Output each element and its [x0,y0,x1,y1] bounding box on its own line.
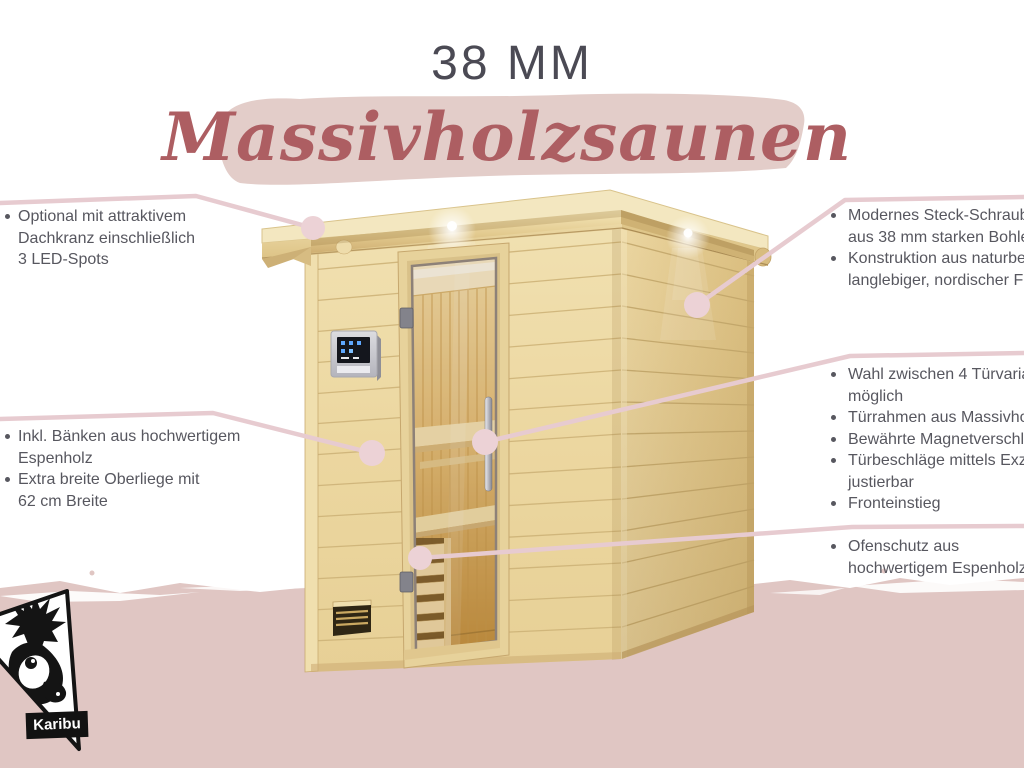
callout-line-text: Fronteinstieg [848,493,1024,515]
door-hinge-bottom [400,572,413,592]
callout-dot-door [472,429,498,455]
headline-size: 38 MM [0,36,1024,91]
callout-line-text: Inkl. Bänken aus hochwertigem [18,426,240,448]
callout-line-text: Extra breite Oberliege mit [18,469,240,491]
bullet-icon [5,214,10,219]
bullet-icon [831,544,836,549]
callout-dot-roof [301,216,325,240]
sauna-control-panel [331,331,381,381]
infographic-canvas: 38 MM Massivholzsaunen Optional mit attr… [0,0,1024,768]
bullet-icon [831,437,836,442]
callout-text-benches: Inkl. Bänken aus hochwertigem Espenholz … [18,426,240,512]
callout-line-text: hochwertigem Espenholz [848,558,1024,580]
headline-product-line: Massivholzsaunen [0,98,1014,176]
bullet-icon [831,213,836,218]
callout-line-text: Optional mit attraktivem [18,206,195,228]
callout-line-text: Dachkranz einschließlich [18,228,195,250]
bullet-icon [831,256,836,261]
callout-line-text: Wahl zwischen 4 Türvarianten [848,364,1024,386]
callout-text-door: Wahl zwischen 4 Türvarianten möglich Tür… [848,364,1024,515]
wall-vent [333,600,371,636]
callout-line-text: Türbeschläge mittels Exzenter [848,450,1024,472]
bullet-icon [5,477,10,482]
bullet-icon [831,372,836,377]
sauna-illustration [262,190,771,672]
callout-line-text: Türrahmen aus Massivholz [848,407,1024,429]
callout-text-construction: Modernes Steck-Schraubsystem aus 38 mm s… [848,205,1024,291]
callout-dot-ovenguard [408,546,432,570]
callout-line-text: 3 LED-Spots [18,249,195,271]
callout-text-ovenguard: Ofenschutz aus hochwertigem Espenholz [848,536,1024,579]
bullet-icon [831,458,836,463]
callout-line-text: justierbar [848,472,1024,494]
callout-line-text: langlebiger, nordischer Fichte [848,270,1024,292]
callout-line-text: Ofenschutz aus [848,536,1024,558]
callout-text-roof: Optional mit attraktivem Dachkranz einsc… [18,206,195,271]
bullet-icon [831,501,836,506]
callout-line-text: möglich [848,386,1024,408]
door-hinge-top [400,308,413,328]
callout-line-text: Espenholz [18,448,240,470]
callout-line-text: Modernes Steck-Schraubsystem [848,205,1024,227]
front-corner-board [305,240,318,672]
callout-line-text: Bewährte Magnetverschlusstechnik [848,429,1024,451]
callout-dot-walls [684,292,710,318]
bullet-icon [831,415,836,420]
bullet-icon [5,434,10,439]
callout-line-text: Konstruktion aus naturbelassener, [848,248,1024,270]
brand-label: Karibu [26,711,89,739]
callout-line-text: 62 cm Breite [18,491,240,513]
callout-line-text: aus 38 mm starken Bohlen [848,227,1024,249]
sauna-door [398,243,509,668]
callout-dot-benches [359,440,385,466]
